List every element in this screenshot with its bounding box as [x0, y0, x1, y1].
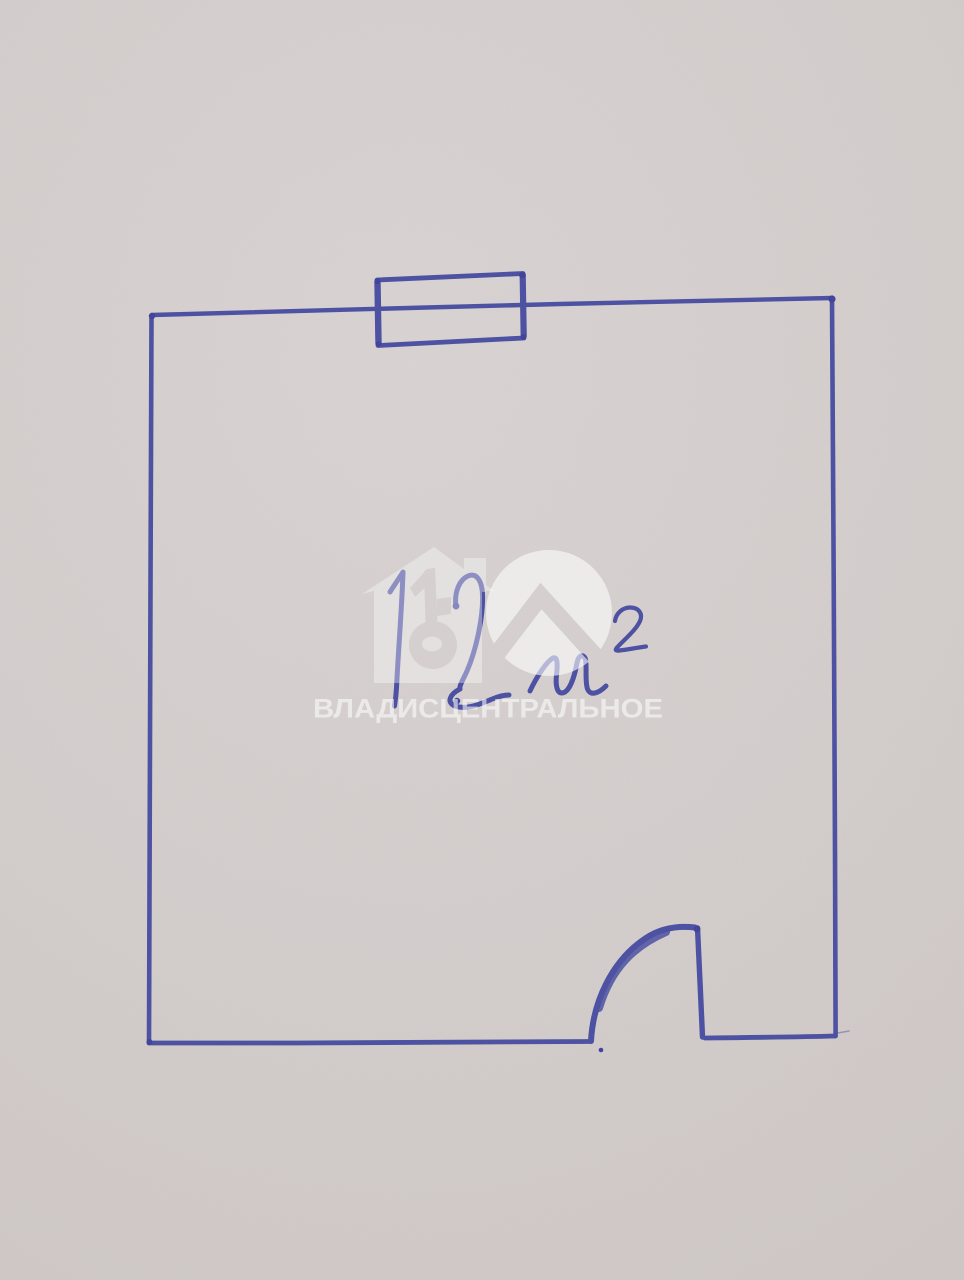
floor-plan-photo: ВЛАДИСЦЕНТРАЛЬНОЕ	[0, 0, 964, 1280]
paper-grain	[0, 0, 964, 1280]
floor-plan-drawing: ВЛАДИСЦЕНТРАЛЬНОЕ	[0, 0, 964, 1280]
